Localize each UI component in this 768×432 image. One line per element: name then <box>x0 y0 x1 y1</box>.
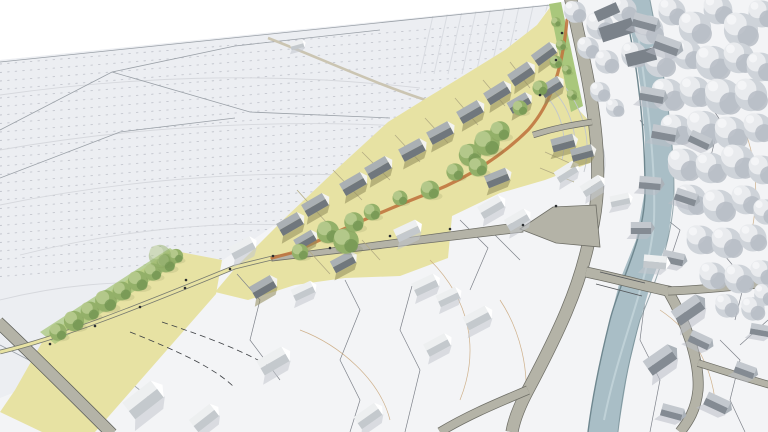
street-dot <box>229 268 232 271</box>
street-dot <box>555 205 558 208</box>
street-dot <box>522 224 525 227</box>
site-plan-rendering <box>0 0 768 432</box>
street-dot <box>272 255 275 258</box>
street-dot <box>185 279 188 282</box>
street-dot <box>389 235 392 238</box>
site-plan-canvas <box>0 0 768 432</box>
street-dot <box>49 343 52 346</box>
street-dot <box>561 32 564 35</box>
street-dot <box>139 306 142 309</box>
street-dot <box>329 247 332 250</box>
street-dot <box>184 287 187 290</box>
street-dot <box>555 59 558 62</box>
street-dot <box>539 94 542 97</box>
street-dot <box>449 228 452 231</box>
street-dot <box>94 325 97 328</box>
